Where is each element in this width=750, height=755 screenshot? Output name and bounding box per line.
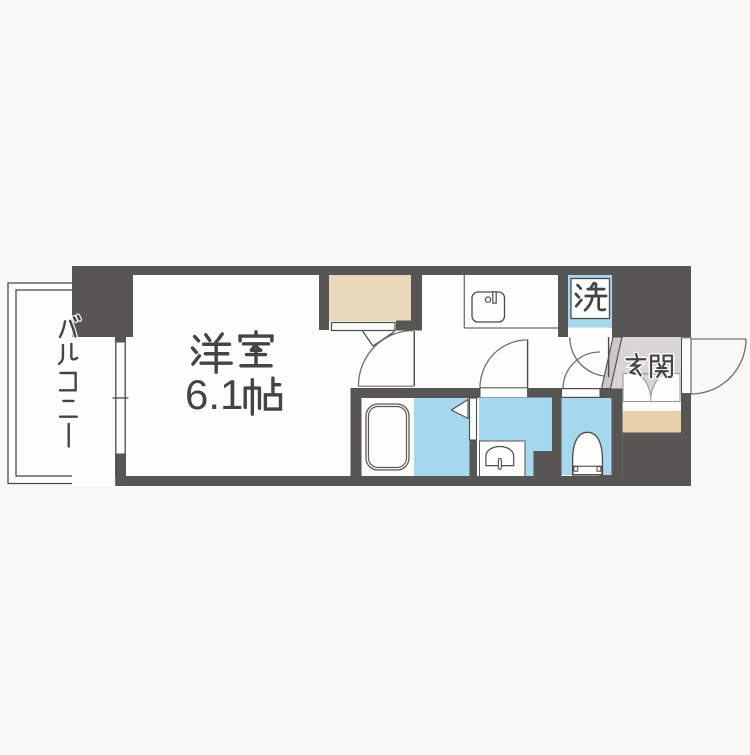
svg-text:6.1: 6.1 [185, 371, 243, 418]
